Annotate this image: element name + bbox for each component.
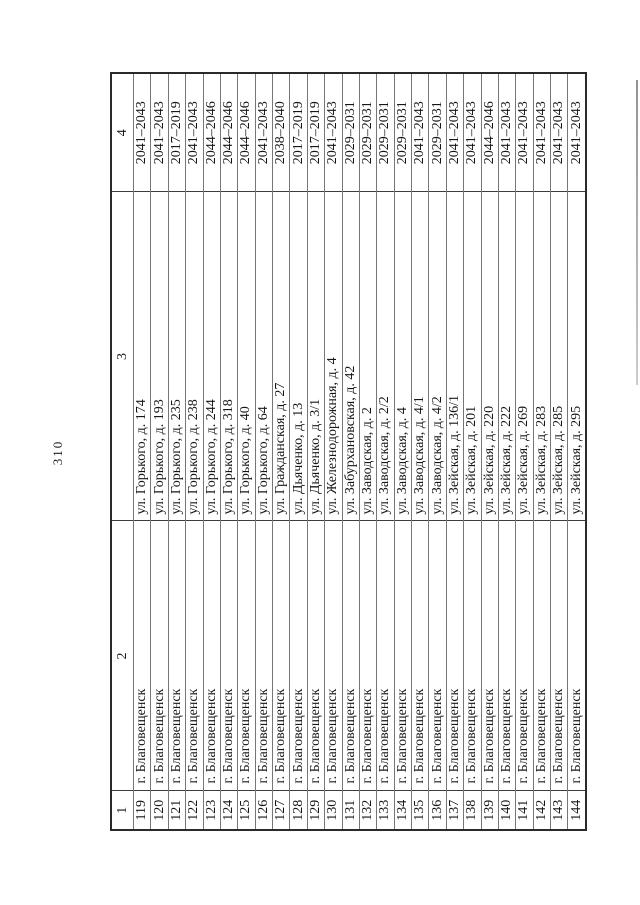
- table-row: 144 г. Благовещенск ул. Зейская, д. 295 …: [568, 73, 586, 830]
- city-cell: г. Благовещенск: [220, 521, 237, 791]
- table-row: 140 г. Благовещенск ул. Зейская, д. 222 …: [498, 73, 515, 830]
- table-row: 133 г. Благовещенск ул. Заводская, д. 2/…: [377, 73, 394, 830]
- years-cell: 2017–2019: [307, 73, 324, 192]
- row-number-cell: 136: [429, 791, 446, 830]
- table-row: 123 г. Благовещенск ул. Горького, д. 244…: [203, 73, 220, 830]
- column-number-2: 2: [111, 521, 134, 791]
- row-number-cell: 124: [220, 791, 237, 830]
- address-cell: ул. Зейская, д. 295: [568, 192, 586, 521]
- row-number-cell: 142: [533, 791, 550, 830]
- address-cell: ул. Зейская, д. 136/1: [446, 192, 463, 521]
- row-number-cell: 121: [168, 791, 185, 830]
- row-number-cell: 120: [151, 791, 168, 830]
- city-cell: г. Благовещенск: [516, 521, 533, 791]
- years-cell: 2041–2043: [134, 73, 151, 192]
- address-cell: ул. Горького, д. 193: [151, 192, 168, 521]
- row-number-cell: 130: [325, 791, 342, 830]
- years-cell: 2029–2031: [377, 73, 394, 192]
- table-row: 127 г. Благовещенск ул. Гражданская, д. …: [273, 73, 290, 830]
- address-cell: ул. Дьяченко, д. 13: [290, 192, 307, 521]
- address-cell: ул. Забурхановская, д. 42: [342, 192, 359, 521]
- address-cell: ул. Гражданская, д. 27: [273, 192, 290, 521]
- row-number-cell: 128: [290, 791, 307, 830]
- city-cell: г. Благовещенск: [151, 521, 168, 791]
- address-cell: ул. Горького, д. 174: [134, 192, 151, 521]
- table-row: 137 г. Благовещенск ул. Зейская, д. 136/…: [446, 73, 463, 830]
- table-row: 119 г. Благовещенск ул. Горького, д. 174…: [134, 73, 151, 830]
- table-row: 143 г. Благовещенск ул. Зейская, д. 285 …: [551, 73, 568, 830]
- table-row: 122 г. Благовещенск ул. Горького, д. 238…: [186, 73, 203, 830]
- rotated-page-content: 310 1 2 3 4 119 г. Благовещенск ул. Горь…: [0, 0, 640, 905]
- years-cell: 2029–2031: [429, 73, 446, 192]
- row-number-cell: 140: [498, 791, 515, 830]
- city-cell: г. Благовещенск: [377, 521, 394, 791]
- address-cell: ул. Зейская, д. 285: [551, 192, 568, 521]
- address-cell: ул. Горького, д. 64: [255, 192, 272, 521]
- table-row: 142 г. Благовещенск ул. Зейская, д. 283 …: [533, 73, 550, 830]
- city-cell: г. Благовещенск: [325, 521, 342, 791]
- city-cell: г. Благовещенск: [186, 521, 203, 791]
- table-row: 130 г. Благовещенск ул. Железнодорожная,…: [325, 73, 342, 830]
- table-row: 139 г. Благовещенск ул. Зейская, д. 220 …: [481, 73, 498, 830]
- city-cell: г. Благовещенск: [342, 521, 359, 791]
- years-cell: 2029–2031: [359, 73, 376, 192]
- table-row: 121 г. Благовещенск ул. Горького, д. 235…: [168, 73, 185, 830]
- city-cell: г. Благовещенск: [359, 521, 376, 791]
- years-cell: 2041–2043: [412, 73, 429, 192]
- row-number-cell: 126: [255, 791, 272, 830]
- table-row: 132 г. Благовещенск ул. Заводская, д. 2 …: [359, 73, 376, 830]
- row-number-cell: 119: [134, 791, 151, 830]
- city-cell: г. Благовещенск: [446, 521, 463, 791]
- address-cell: ул. Зейская, д. 269: [516, 192, 533, 521]
- row-number-cell: 134: [394, 791, 411, 830]
- years-cell: 2029–2031: [342, 73, 359, 192]
- table-row: 141 г. Благовещенск ул. Зейская, д. 269 …: [516, 73, 533, 830]
- table-row: 125 г. Благовещенск ул. Горького, д. 40 …: [238, 73, 255, 830]
- years-cell: 2044–2046: [203, 73, 220, 192]
- row-number-cell: 125: [238, 791, 255, 830]
- city-cell: г. Благовещенск: [533, 521, 550, 791]
- years-cell: 2017–2019: [168, 73, 185, 192]
- city-cell: г. Благовещенск: [273, 521, 290, 791]
- table-row: 134 г. Благовещенск ул. Заводская, д. 4 …: [394, 73, 411, 830]
- row-number-cell: 133: [377, 791, 394, 830]
- page-number: 310: [50, 0, 66, 905]
- years-cell: 2044–2046: [481, 73, 498, 192]
- city-cell: г. Благовещенск: [464, 521, 481, 791]
- address-cell: ул. Дьяченко, д. 3/1: [307, 192, 324, 521]
- table-body: 119 г. Благовещенск ул. Горького, д. 174…: [134, 73, 587, 830]
- table-row: 136 г. Благовещенск ул. Заводская, д. 4/…: [429, 73, 446, 830]
- table-row: 120 г. Благовещенск ул. Горького, д. 193…: [151, 73, 168, 830]
- row-number-cell: 129: [307, 791, 324, 830]
- years-cell: 2041–2043: [568, 73, 586, 192]
- row-number-cell: 139: [481, 791, 498, 830]
- table-row: 128 г. Благовещенск ул. Дьяченко, д. 13 …: [290, 73, 307, 830]
- years-cell: 2041–2043: [186, 73, 203, 192]
- row-number-cell: 123: [203, 791, 220, 830]
- row-number-cell: 144: [568, 791, 586, 830]
- row-number-cell: 131: [342, 791, 359, 830]
- address-cell: ул. Заводская, д. 2: [359, 192, 376, 521]
- repair-schedule-table: 1 2 3 4 119 г. Благовещенск ул. Горького…: [110, 72, 587, 831]
- years-cell: 2029–2031: [394, 73, 411, 192]
- row-number-cell: 141: [516, 791, 533, 830]
- address-cell: ул. Железнодорожная, д. 4: [325, 192, 342, 521]
- city-cell: г. Благовещенск: [429, 521, 446, 791]
- address-cell: ул. Зейская, д. 220: [481, 192, 498, 521]
- address-cell: ул. Заводская, д. 4/1: [412, 192, 429, 521]
- table-row: 135 г. Благовещенск ул. Заводская, д. 4/…: [412, 73, 429, 830]
- address-cell: ул. Заводская, д. 2/2: [377, 192, 394, 521]
- column-number-4: 4: [111, 73, 134, 192]
- city-cell: г. Благовещенск: [168, 521, 185, 791]
- city-cell: г. Благовещенск: [412, 521, 429, 791]
- years-cell: 2041–2043: [464, 73, 481, 192]
- years-cell: 2041–2043: [151, 73, 168, 192]
- city-cell: г. Благовещенск: [481, 521, 498, 791]
- table-row: 131 г. Благовещенск ул. Забурхановская, …: [342, 73, 359, 830]
- row-number-cell: 137: [446, 791, 463, 830]
- address-cell: ул. Горького, д. 235: [168, 192, 185, 521]
- address-cell: ул. Заводская, д. 4/2: [429, 192, 446, 521]
- city-cell: г. Благовещенск: [551, 521, 568, 791]
- row-number-cell: 132: [359, 791, 376, 830]
- city-cell: г. Благовещенск: [255, 521, 272, 791]
- years-cell: 2041–2043: [551, 73, 568, 192]
- city-cell: г. Благовещенск: [238, 521, 255, 791]
- years-cell: 2041–2043: [498, 73, 515, 192]
- row-number-cell: 122: [186, 791, 203, 830]
- address-cell: ул. Горького, д. 40: [238, 192, 255, 521]
- address-cell: ул. Горького, д. 238: [186, 192, 203, 521]
- column-number-3: 3: [111, 192, 134, 521]
- years-cell: 2044–2046: [238, 73, 255, 192]
- years-cell: 2041–2043: [533, 73, 550, 192]
- address-cell: ул. Горького, д. 318: [220, 192, 237, 521]
- column-numbers-row: 1 2 3 4: [111, 73, 134, 830]
- address-cell: ул. Зейская, д. 222: [498, 192, 515, 521]
- table-row: 126 г. Благовещенск ул. Горького, д. 64 …: [255, 73, 272, 830]
- address-cell: ул. Зейская, д. 201: [464, 192, 481, 521]
- city-cell: г. Благовещенск: [394, 521, 411, 791]
- row-number-cell: 143: [551, 791, 568, 830]
- city-cell: г. Благовещенск: [134, 521, 151, 791]
- table-row: 124 г. Благовещенск ул. Горького, д. 318…: [220, 73, 237, 830]
- city-cell: г. Благовещенск: [290, 521, 307, 791]
- years-cell: 2017–2019: [290, 73, 307, 192]
- city-cell: г. Благовещенск: [498, 521, 515, 791]
- address-cell: ул. Горького, д. 244: [203, 192, 220, 521]
- years-cell: 2041–2043: [255, 73, 272, 192]
- address-cell: ул. Заводская, д. 4: [394, 192, 411, 521]
- row-number-cell: 127: [273, 791, 290, 830]
- table-row: 129 г. Благовещенск ул. Дьяченко, д. 3/1…: [307, 73, 324, 830]
- years-cell: 2044–2046: [220, 73, 237, 192]
- city-cell: г. Благовещенск: [568, 521, 586, 791]
- scan-edge-artifact: [636, 80, 638, 385]
- years-cell: 2041–2043: [516, 73, 533, 192]
- city-cell: г. Благовещенск: [203, 521, 220, 791]
- row-number-cell: 138: [464, 791, 481, 830]
- table-row: 138 г. Благовещенск ул. Зейская, д. 201 …: [464, 73, 481, 830]
- column-number-1: 1: [111, 791, 134, 830]
- years-cell: 2041–2043: [446, 73, 463, 192]
- row-number-cell: 135: [412, 791, 429, 830]
- address-cell: ул. Зейская, д. 283: [533, 192, 550, 521]
- city-cell: г. Благовещенск: [307, 521, 324, 791]
- years-cell: 2038–2040: [273, 73, 290, 192]
- years-cell: 2041–2043: [325, 73, 342, 192]
